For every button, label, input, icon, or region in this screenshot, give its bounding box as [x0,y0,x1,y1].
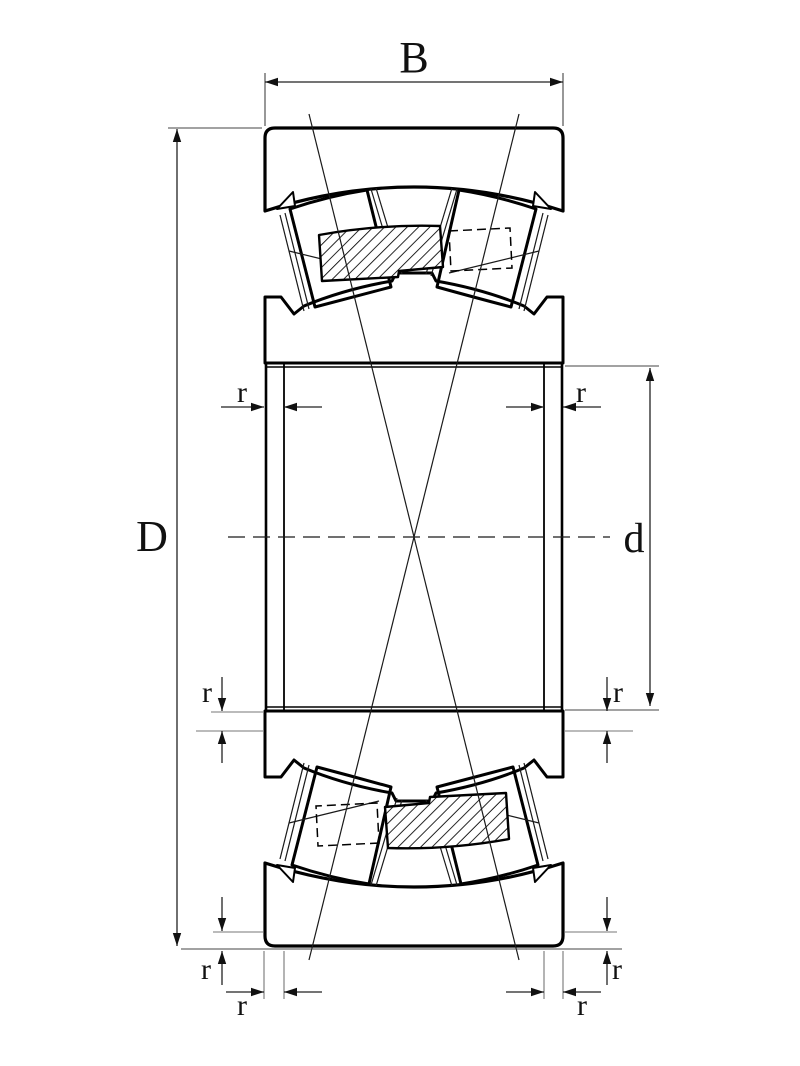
outer-ring-top [265,128,563,211]
roller-right-centermark [449,251,539,273]
label-r: r [237,376,247,409]
label-r: r [202,676,212,709]
cage-pocket-dashed [316,803,379,846]
label-B: B [399,33,428,82]
label-r: r [576,376,586,409]
dimensions: B D d r r [136,33,659,1022]
label-r: r [201,953,211,986]
cage-pocket-dashed [449,228,512,271]
dim-r-top-right: r [506,376,601,409]
dim-width-B: B [265,33,563,126]
outer-ring-bottom [265,863,563,946]
bearing-drawing: B D d r r [0,0,800,1066]
dim-r-bottom-right-vertical: r [565,897,622,986]
outer-ring-notch-right [277,865,295,882]
dim-r-bottom-left-vertical: r [201,897,263,986]
dim-r-mid-left: r [196,676,263,763]
bearing-section-top [265,128,563,363]
outer-ring-notch-right [533,192,551,209]
dim-r-mid-right: r [565,676,633,763]
label-D: D [136,512,168,561]
dim-r-bottom-left-width: r [226,951,322,1022]
outer-ring-notch-left [277,192,295,209]
roller-b-right-centermark [289,801,379,823]
dim-r-top-left: r [221,376,322,409]
label-r: r [612,953,622,986]
bearing-section-bottom [265,711,563,946]
outer-ring-notch-left [533,865,551,882]
label-r: r [237,989,247,1022]
dim-bore-diameter-d: d [565,366,659,710]
label-r: r [613,676,623,709]
dim-r-bottom-right-width: r [506,951,601,1022]
label-r: r [577,989,587,1022]
drawing-canvas: B D d r r [0,0,800,1066]
label-d: d [624,516,645,562]
